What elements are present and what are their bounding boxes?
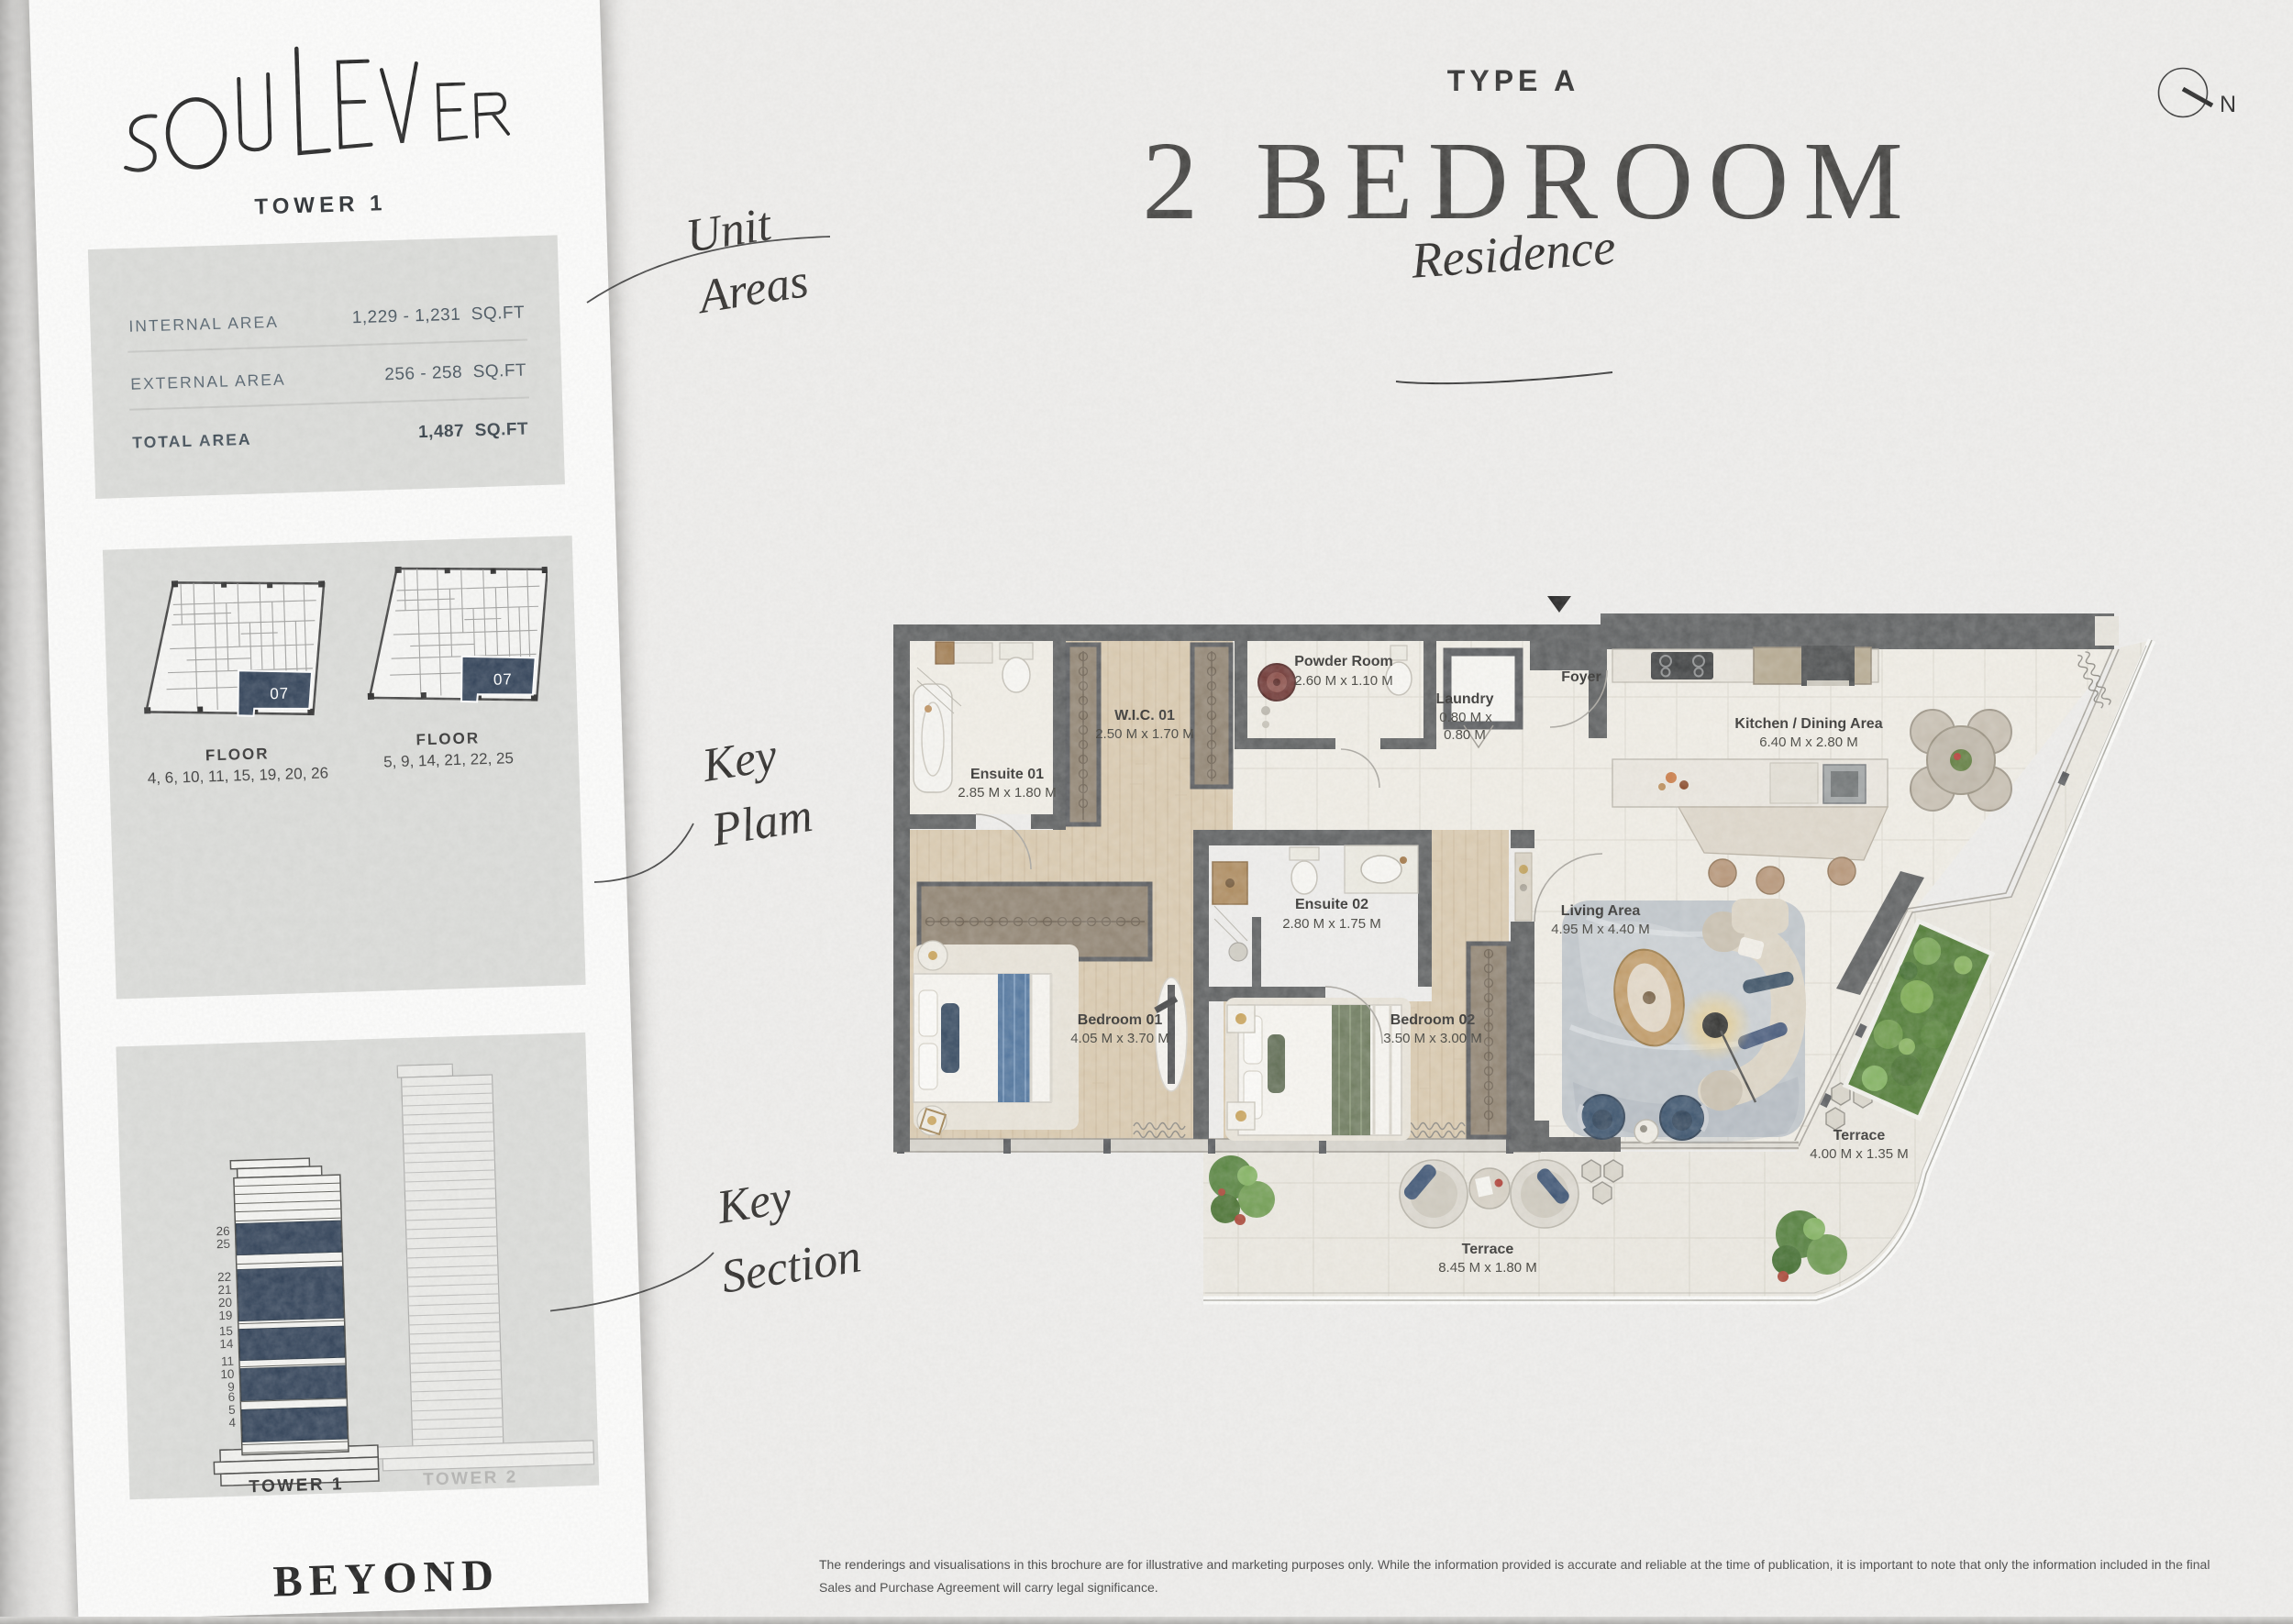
svg-text:2.60 M x 1.10 M: 2.60 M x 1.10 M — [1294, 673, 1393, 689]
svg-text:0.80 M x: 0.80 M x — [1439, 710, 1492, 725]
svg-text:07: 07 — [270, 685, 289, 703]
svg-text:Terrace: Terrace — [1833, 1128, 1886, 1143]
svg-text:6.40 M x 2.80 M: 6.40 M x 2.80 M — [1759, 735, 1858, 750]
svg-text:Kitchen / Dining Area: Kitchen / Dining Area — [1734, 716, 1882, 732]
svg-text:Foyer: Foyer — [1561, 669, 1601, 685]
svg-text:07: 07 — [493, 670, 513, 689]
svg-text:4.05 M x 3.70 M: 4.05 M x 3.70 M — [1070, 1031, 1169, 1046]
svg-text:TOWER 1: TOWER 1 — [249, 1475, 344, 1497]
svg-text:N: N — [2220, 92, 2236, 117]
svg-text:Bedroom 01: Bedroom 01 — [1078, 1012, 1163, 1028]
svg-text:Laundry: Laundry — [1435, 691, 1493, 707]
svg-text:Powder Room: Powder Room — [1294, 654, 1393, 669]
svg-text:19: 19 — [218, 1309, 232, 1322]
svg-text:Ensuite 01: Ensuite 01 — [970, 767, 1044, 782]
svg-text:4: 4 — [228, 1416, 236, 1430]
svg-text:W.I.C. 01: W.I.C. 01 — [1114, 708, 1175, 724]
svg-text:3.50 M x 3.00 M: 3.50 M x 3.00 M — [1383, 1031, 1482, 1046]
svg-text:2.80 M x 1.75 M: 2.80 M x 1.75 M — [1282, 916, 1381, 932]
svg-text:5: 5 — [228, 1403, 236, 1417]
svg-text:TOWER 2: TOWER 2 — [423, 1467, 518, 1489]
svg-text:4.95 M x 4.40 M: 4.95 M x 4.40 M — [1551, 922, 1650, 937]
svg-text:Terrace: Terrace — [1462, 1242, 1514, 1257]
svg-text:Living Area: Living Area — [1561, 903, 1641, 919]
svg-text:25: 25 — [216, 1237, 230, 1251]
svg-text:4.00 M x 1.35 M: 4.00 M x 1.35 M — [1810, 1146, 1909, 1162]
svg-text:0.80 M: 0.80 M — [1444, 727, 1486, 743]
svg-text:6: 6 — [227, 1390, 235, 1404]
svg-text:2.50 M x 1.70 M: 2.50 M x 1.70 M — [1095, 726, 1194, 742]
svg-text:Ensuite 02: Ensuite 02 — [1295, 897, 1368, 912]
svg-text:Bedroom 02: Bedroom 02 — [1390, 1012, 1476, 1028]
svg-text:2.85 M x 1.80 M: 2.85 M x 1.80 M — [958, 785, 1057, 801]
svg-text:14: 14 — [219, 1337, 234, 1351]
svg-text:8.45 M x 1.80 M: 8.45 M x 1.80 M — [1438, 1260, 1537, 1276]
